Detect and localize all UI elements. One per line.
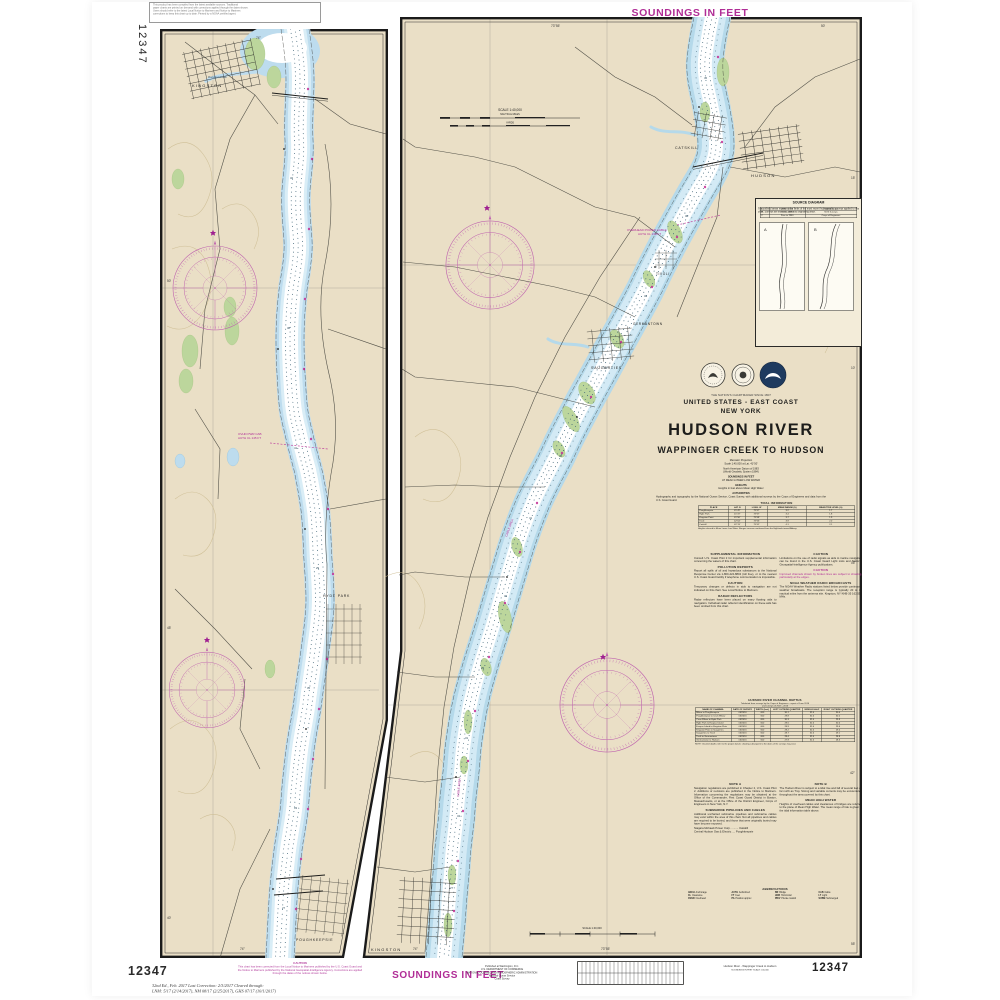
table-cell: Prior to 1940 — [769, 214, 805, 217]
svg-text:73°55': 73°55' — [601, 947, 610, 951]
source-table: A1981 - 2016NOS SurveysB1940 - 1980NOS S… — [760, 207, 857, 218]
svg-text:CATSKILL: CATSKILL — [675, 146, 698, 150]
tidal-information-block: TIDAL INFORMATION PLACELAT. NLONG. WMEAN… — [698, 502, 855, 557]
chart-series: UNITED STATES - EAST COAST — [656, 399, 826, 406]
svg-text:AUTH CL 145 FT: AUTH CL 145 FT — [238, 436, 261, 440]
svg-text:34: 34 — [457, 814, 461, 818]
abbreviation-item: PAPosition approx — [732, 897, 776, 900]
note-heading: CAUTION — [694, 582, 777, 585]
text-line: Coast Survey — [450, 978, 554, 981]
svg-text:33: 33 — [504, 594, 508, 598]
svg-text:10': 10' — [851, 366, 856, 370]
text-line: corrections to keep this chart up to dat… — [153, 13, 317, 16]
svg-text:74°: 74° — [413, 947, 419, 951]
chart-notes-columns: SUPPLEMENTAL INFORMATIONConsult U.S. Coa… — [694, 553, 862, 669]
svg-text:27: 27 — [450, 886, 454, 890]
abbreviation-item: PRIVPrivate maintd — [775, 897, 819, 900]
svg-text:31: 31 — [465, 736, 469, 740]
channel-depths-table: NAME OF CHANNELDATE OF SURVEYWIDTH (feet… — [695, 708, 855, 743]
note-heading: CAUTION — [780, 569, 863, 572]
svg-text:KINGSTON: KINGSTON — [192, 83, 222, 88]
table-row: CPrior to 1940Corps of Engineers — [760, 214, 856, 217]
svg-text:32: 32 — [290, 176, 294, 180]
abbreviation-item: OVHDOverhead — [688, 897, 732, 900]
svg-text:A: A — [764, 227, 767, 232]
svg-text:SAUGERTIES: SAUGERTIES — [591, 366, 622, 370]
table-row: Catskill42°13'73°52'4.12.1 — [698, 523, 855, 526]
svg-text:32: 32 — [644, 294, 648, 298]
note-body: Consult U.S. Coast Pilot 2 for important… — [694, 557, 777, 564]
chart-title-details: Mercator Projection Scale 1:40,000 at La… — [656, 459, 826, 502]
svg-text:73°55': 73°55' — [551, 24, 560, 28]
chart-state: NEW YORK — [656, 408, 826, 415]
tidal-table-footnote: Heights referred to Mean Lower Low Water… — [698, 527, 855, 530]
table-cell: 4.1 — [768, 523, 807, 526]
lower-notes: NOTE ANavigation regulations are publish… — [694, 783, 862, 889]
note-body: Limitations on the use of radio signals … — [780, 557, 863, 567]
abbreviations-block: ABBREVIATIONS ANCHAnchorageAUTHAuthorize… — [688, 888, 862, 913]
svg-text:POUGHKEEPSIE: POUGHKEEPSIE — [296, 938, 333, 942]
publisher-block: Published at Washington, D.C.U.S. DEPART… — [450, 965, 554, 996]
table-cell: 32.0 — [803, 739, 821, 742]
svg-text:36: 36 — [559, 454, 563, 458]
svg-text:TIVOLI: TIVOLI — [656, 272, 670, 276]
svg-text:38: 38 — [685, 214, 689, 218]
chart-note: SUPPLEMENTAL INFORMATIONConsult U.S. Coa… — [694, 553, 777, 563]
agency-seals — [699, 360, 789, 392]
left-panel-neatline — [161, 30, 387, 957]
svg-text:50': 50' — [821, 24, 826, 28]
svg-text:74°: 74° — [256, 36, 262, 40]
margin-ruler — [577, 961, 684, 986]
source-diagram-figure: A B — [758, 221, 855, 313]
chart-note: NOAA WEATHER RADIO BROADCASTSThe NOAA We… — [780, 582, 863, 599]
chart-number-bottom-right: 12347 — [812, 962, 849, 974]
svg-text:YARDS: YARDS — [506, 122, 514, 125]
table-row: Germantown to Hudson06/201660027.932.028… — [695, 739, 855, 742]
svg-text:AUTH CL 139 FT: AUTH CL 139 FT — [638, 232, 661, 236]
left-map-panel: 32 38 41 29 35 33 27 — [160, 29, 388, 958]
print-disclaimer-box: This product has been compiled from the … — [149, 2, 321, 23]
table-cell: 2.1 — [807, 523, 855, 526]
commerce-seal-icon — [701, 363, 725, 387]
table-cell: Catskill — [698, 523, 729, 526]
table-cell: 06/2016 — [731, 739, 754, 742]
svg-text:38: 38 — [287, 326, 291, 330]
svg-text:NAUTICAL MILES: NAUTICAL MILES — [500, 113, 520, 116]
svg-text:41: 41 — [294, 446, 298, 450]
svg-text:29: 29 — [316, 566, 320, 570]
svg-text:33: 33 — [294, 806, 298, 810]
chart-note: RADAR REFLECTORSRadar reflectors have be… — [694, 595, 777, 609]
chart-note: CAUTIONTemporary changes or defects in a… — [694, 582, 777, 592]
table-cell: 27.9 — [771, 739, 803, 742]
table-cell: Germantown to Hudson — [695, 739, 731, 742]
svg-text:50': 50' — [167, 279, 172, 283]
channel-depths-block: HUDSON RIVER CHANNEL DEPTHS Tabulated fr… — [695, 699, 855, 791]
svg-text:41: 41 — [529, 516, 533, 520]
svg-text:45: 45 — [704, 76, 708, 80]
notes-column-1: SUPPLEMENTAL INFORMATIONConsult U.S. Coa… — [694, 553, 777, 611]
ocean-service-seal-icon — [732, 364, 754, 386]
table-cell: Corps of Engineers — [805, 214, 857, 217]
svg-text:29: 29 — [481, 666, 485, 670]
channel-table-footnote: NOTE: Channel depths refer to the projec… — [695, 743, 855, 746]
lower-notes-right: NOTE BThe Hudson River is subject to a t… — [780, 783, 863, 836]
svg-text:Rondout Creek: Rondout Creek — [208, 75, 227, 79]
chart-note: CAUTIONLimitations on the use of radio s… — [780, 553, 863, 567]
svg-text:45': 45' — [167, 626, 172, 630]
product-label: Hudson River - Wappinger Creek to Hudson… — [690, 965, 810, 977]
note-body: The NOAA Weather Radio stations listed b… — [780, 586, 863, 599]
svg-text:15': 15' — [851, 176, 856, 180]
lower-notes-left: NOTE ANavigation regulations are publish… — [694, 783, 777, 836]
agency-tagline: THE NATION'S CHARTMAKER SINCE 1807 — [699, 394, 784, 397]
note-body: Temporary changes or defects in aids to … — [694, 586, 777, 593]
svg-text:GERMANTOWN: GERMANTOWN — [633, 322, 663, 326]
table-cell: 600 — [754, 739, 771, 742]
text-line: Central Hudson Gas & Electric .... Pough… — [694, 830, 777, 833]
chart-note: POLLUTION REPORTSReport all spills of oi… — [694, 566, 777, 580]
noaa-seal-icon — [760, 362, 786, 388]
note-heading: POLLUTION REPORTS — [694, 566, 777, 569]
svg-text:B: B — [814, 227, 817, 232]
svg-text:SCALE 1:40,000: SCALE 1:40,000 — [582, 926, 602, 930]
print-disclaimer-text: This product has been compiled from the … — [153, 4, 317, 16]
svg-text:HUDSON: HUDSON — [751, 173, 776, 178]
product-photo: This product has been compiled from the … — [0, 0, 1000, 1000]
note-heading: NOAA WEATHER RADIO BROADCASTS — [780, 582, 863, 585]
tidal-table: PLACELAT. NLONG. WMEAN RANGE (ft)MEAN TI… — [698, 506, 855, 527]
table-cell: 28.3 — [821, 739, 855, 742]
note-body: Radar reflectors have been placed on man… — [694, 599, 777, 609]
source-diagram-title: SOURCE DIAGRAM — [783, 201, 834, 205]
note-body: Improved channels shown by broken lines … — [780, 573, 863, 580]
svg-text:55': 55' — [851, 942, 856, 946]
chart-number-top-left: 12347 — [136, 24, 148, 65]
table-cell: 73°52' — [745, 523, 767, 526]
svg-text:74°: 74° — [240, 947, 246, 951]
svg-text:KINGSTON: KINGSTON — [371, 947, 401, 952]
table-cell: C — [760, 214, 769, 217]
chart-title: HUDSON RIVER — [656, 421, 826, 440]
chart-note: CAUTIONImproved channels shown by broken… — [780, 569, 863, 579]
svg-text:35: 35 — [307, 686, 311, 690]
table-cell: 42°13' — [729, 523, 745, 526]
note-heading: RADAR REFLECTORS — [694, 595, 777, 598]
note-heading: SUPPLEMENTAL INFORMATION — [694, 553, 777, 556]
note-body: Report all spills of oil and hazardous s… — [694, 570, 777, 580]
chart-number-bottom-left: 12347 — [128, 964, 168, 978]
source-diagram-box: SOURCE DIAGRAM The outlined areas repres… — [755, 198, 862, 347]
notes-column-2: CAUTIONLimitations on the use of radio s… — [780, 553, 863, 611]
abbreviation-item: SUBMSubmerged — [819, 897, 863, 900]
svg-text:40': 40' — [167, 916, 172, 920]
note-heading: CAUTION — [780, 553, 863, 556]
svg-text:27: 27 — [282, 906, 286, 910]
svg-text:HYDE PARK: HYDE PARK — [323, 594, 350, 598]
chart-subtitle: WAPPINGER CREEK TO HUDSON — [656, 445, 826, 455]
abbreviations-list: ANCHAnchorageAUTHAuthorizedBRBridgeCABCa… — [688, 891, 862, 900]
svg-text:SCALE 1:40,000: SCALE 1:40,000 — [498, 108, 522, 112]
